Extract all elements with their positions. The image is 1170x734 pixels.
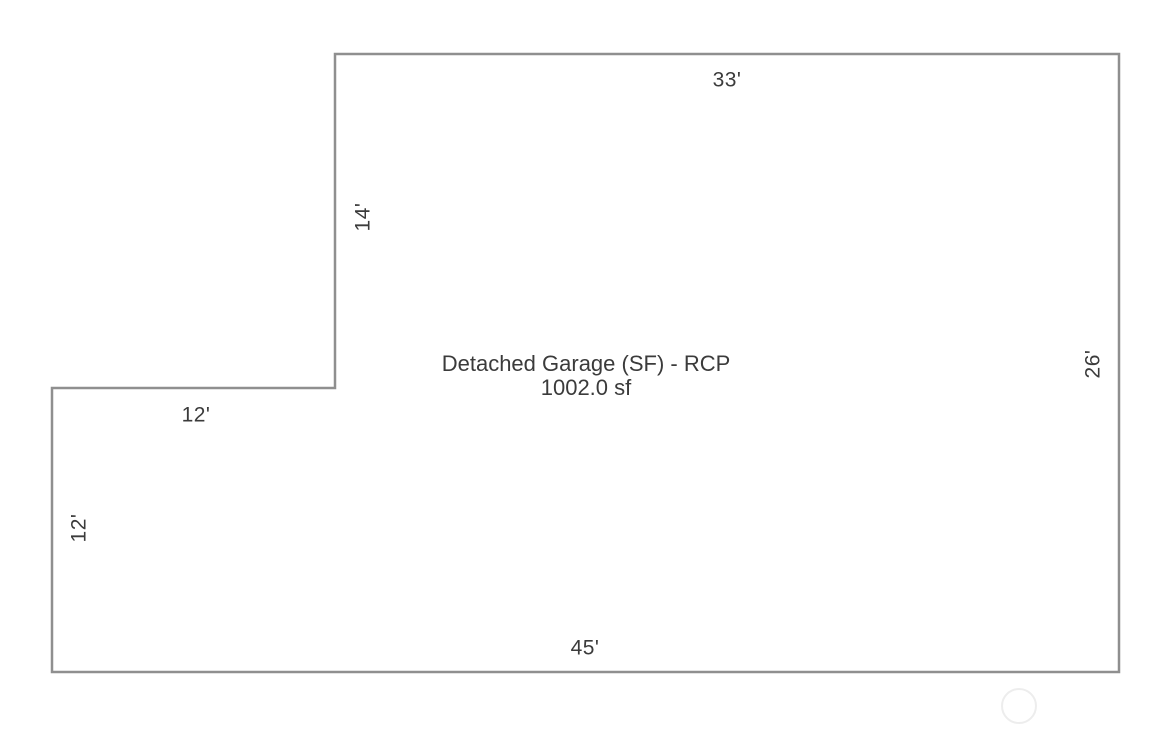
garage-label-block: Detached Garage (SF) - RCP 1002.0 sf — [442, 352, 731, 400]
dimension-label-left-height: 12' — [69, 514, 90, 543]
dimension-label-bottom-width: 45' — [571, 638, 600, 659]
dimension-label-right-height: 26' — [1083, 350, 1104, 379]
dimension-label-top-width: 33' — [713, 70, 742, 91]
dimension-label-step-height: 14' — [353, 203, 374, 232]
garage-title: Detached Garage (SF) - RCP — [442, 352, 731, 376]
dimension-label-notch-width: 12' — [182, 405, 211, 426]
garage-area: 1002.0 sf — [442, 376, 731, 400]
watermark-circle — [1002, 689, 1036, 723]
floorplan-canvas: 33' 14' 12' 12' 45' 26' Detached Garage … — [0, 0, 1170, 734]
